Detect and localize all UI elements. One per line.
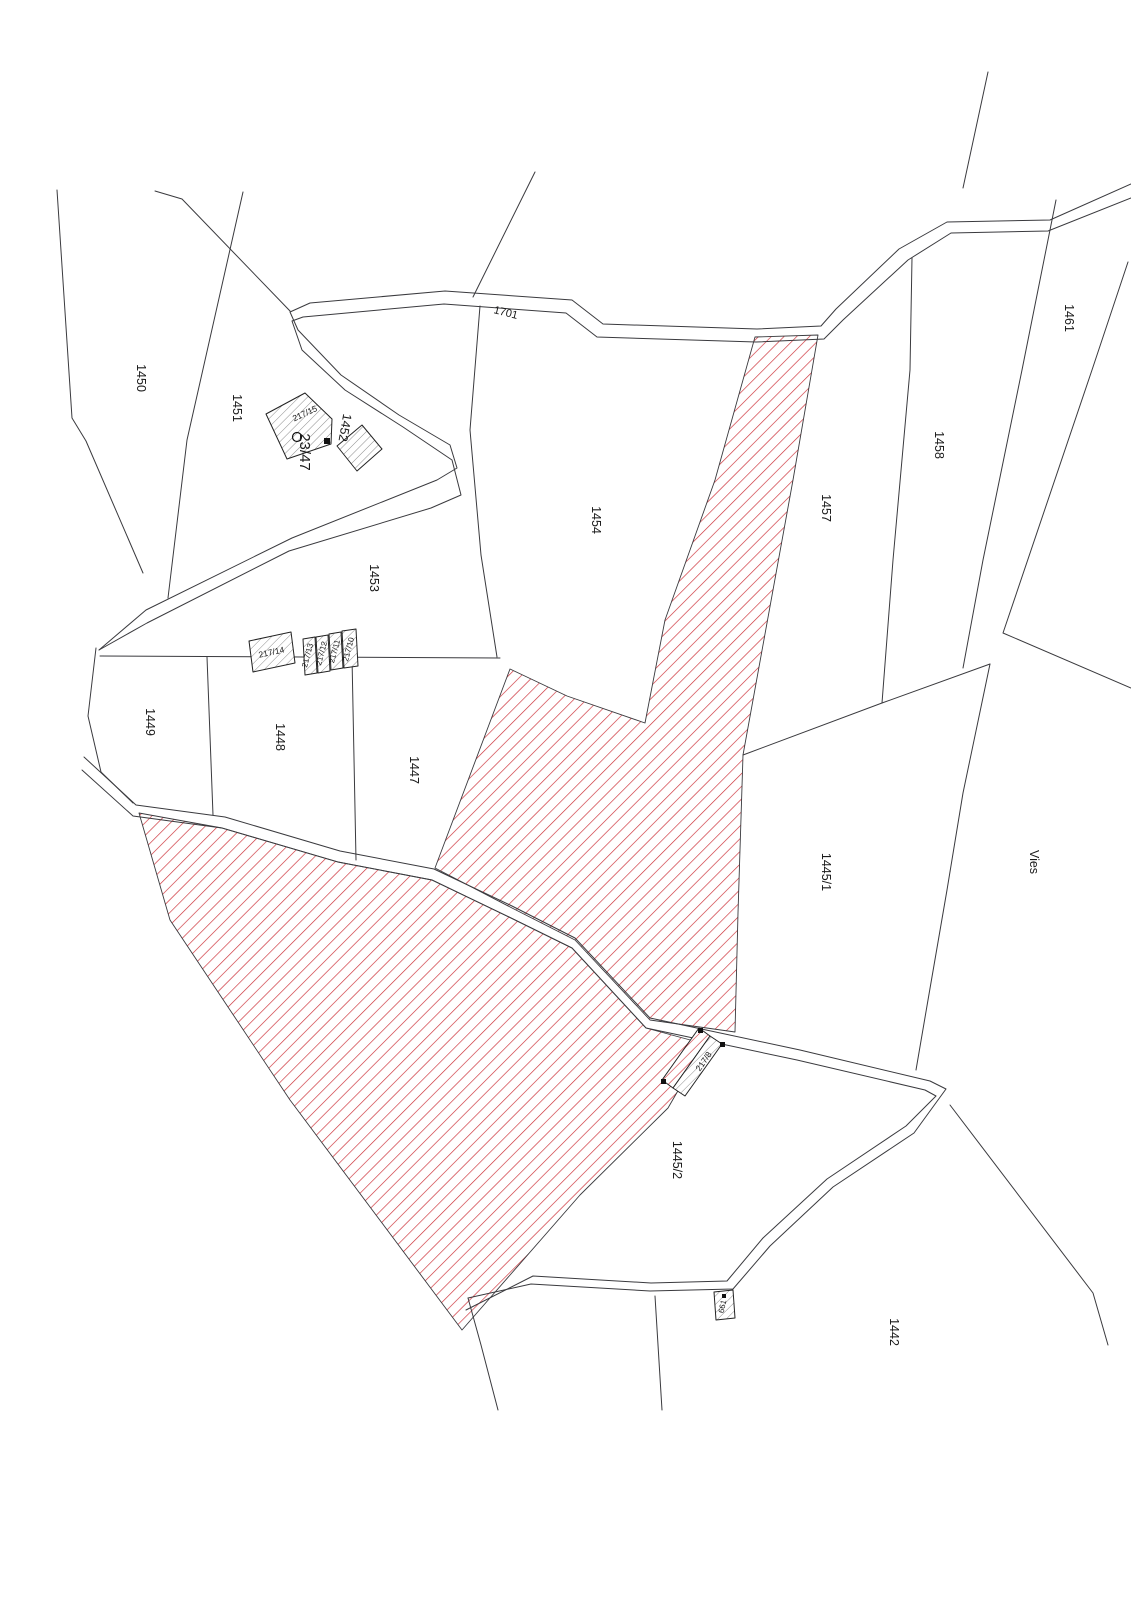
corner-marker-217-8-b [720,1042,725,1047]
boundary-1453-south [100,656,500,658]
cadastral-map-page: 1450 1451 1452 1453 1454 1457 1458 1461 … [0,0,1131,1600]
parcel-label-1447: 1447 [407,756,421,784]
boundary-bottom-center [655,1296,662,1410]
boundary-1453-1454 [470,306,497,657]
boundary-1449-west [88,648,133,803]
boundary-1448-1447 [352,657,356,860]
boundary-1457-1445-1 [743,664,990,755]
boundary-top-right-stub [963,72,988,188]
map-canvas: 1450 1451 1452 1453 1454 1457 1458 1461 … [0,0,1131,1600]
road-1701-south-edge [99,198,1131,650]
boundary-1449-1448 [207,657,213,815]
parcel-label-1451: 1451 [230,394,244,422]
boundary-1454-north-stub [473,172,535,297]
highlighted-areas [139,335,818,1330]
parcel-label-1457: 1457 [819,494,833,522]
corner-marker-217-8-c [661,1079,666,1084]
parcel-label-1442: 1442 [887,1318,901,1346]
parcel-label-1445-1: 1445/1 [819,853,833,891]
parcel-label-1461: 1461 [1062,304,1076,332]
corner-marker-217-15 [324,438,330,444]
survey-point-label-23-47: 23/47 [296,433,313,471]
parcel-label-1453: 1453 [367,564,381,592]
parcel-label-1445-2: 1445/2 [670,1141,684,1179]
parcel-label-1458: 1458 [932,431,946,459]
boundary-bottom-left [468,1298,498,1410]
corner-marker-217-8-a [698,1028,703,1033]
boundary-1451-north [155,191,290,311]
parcel-label-1448: 1448 [273,723,287,751]
corner-marker-661 [722,1294,726,1298]
boundary-1445-1-vies [916,664,990,1070]
boundary-1450-west [57,190,143,573]
road-label-1701: 1701 [492,304,519,322]
parcel-label-1450: 1450 [134,364,148,392]
boundary-vies-1442 [950,1105,1108,1345]
boundary-1458-1461 [963,200,1056,668]
boundary-1457-1458 [882,258,912,703]
parcel-label-1454: 1454 [589,506,603,534]
road-1701-north-edge [99,184,1131,650]
parcel-label-1449: 1449 [143,708,157,736]
zone-label-vies: Vies [1027,850,1041,874]
